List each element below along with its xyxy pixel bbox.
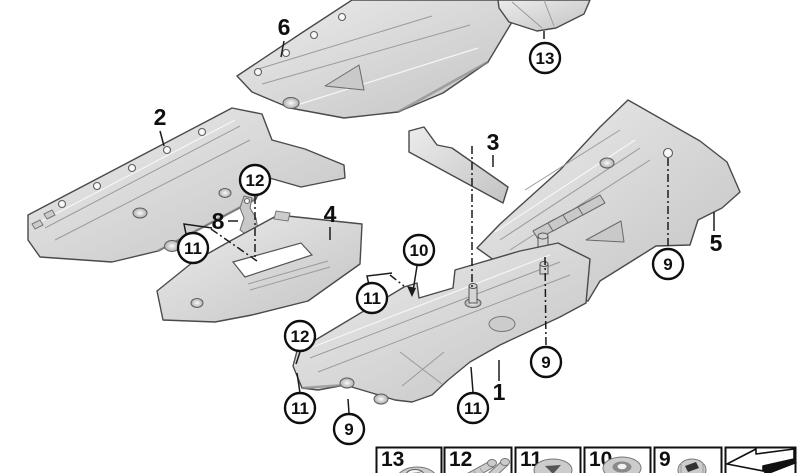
svg-text:13: 13 [536, 49, 555, 68]
callout-9-bottom[interactable]: 9 [334, 414, 364, 444]
part-label-4[interactable]: 4 [324, 201, 337, 227]
legend-cell-10[interactable]: 10 [585, 448, 651, 473]
svg-text:11: 11 [363, 289, 381, 308]
svg-text:12: 12 [449, 448, 472, 471]
part-label-1[interactable]: 1 [493, 379, 506, 405]
callout-11-mid[interactable]: 11 [357, 283, 387, 313]
callout-12-lower[interactable]: 12 [285, 321, 315, 351]
svg-text:9: 9 [659, 448, 671, 471]
part-label-3[interactable]: 3 [487, 129, 500, 155]
legend-cell-11[interactable]: 11 [516, 448, 581, 473]
callout-12-upper[interactable]: 12 [240, 165, 270, 195]
svg-text:12: 12 [291, 327, 310, 346]
part-label-6[interactable]: 6 [278, 14, 291, 40]
legend-cell-13[interactable]: 13 [377, 448, 442, 473]
callout-11-bottom-right[interactable]: 11 [458, 393, 488, 423]
svg-text:11: 11 [184, 239, 202, 258]
svg-text:12: 12 [246, 171, 265, 190]
callout-10[interactable]: 10 [404, 235, 434, 265]
part-label-2[interactable]: 2 [154, 104, 167, 130]
panel-13-bracket [498, 0, 590, 31]
svg-text:11: 11 [464, 399, 482, 418]
svg-text:9: 9 [663, 255, 672, 274]
svg-text:13: 13 [381, 448, 404, 471]
callout-9-right[interactable]: 9 [653, 249, 683, 279]
diagram: 6 2 3 8 4 5 1 13 12 11 10 11 9 12 9 11 1… [0, 0, 800, 473]
callout-9-center[interactable]: 9 [531, 347, 561, 377]
part-label-8[interactable]: 8 [212, 208, 225, 234]
callout-13[interactable]: 13 [530, 43, 560, 73]
callout-11-bottom-left[interactable]: 11 [285, 393, 315, 423]
stud-panel-1-short [540, 262, 548, 275]
svg-text:10: 10 [410, 241, 429, 260]
callout-11-left[interactable]: 11 [178, 233, 208, 263]
svg-text:9: 9 [541, 353, 550, 372]
part-label-5[interactable]: 5 [710, 230, 723, 256]
legend-cell-12[interactable]: 12 [445, 448, 512, 473]
svg-text:9: 9 [344, 420, 353, 439]
svg-text:11: 11 [291, 399, 309, 418]
parts-diagram-canvas: 6 2 3 8 4 5 1 13 12 11 10 11 9 12 9 11 1… [0, 0, 800, 473]
legend-cell-continuation[interactable] [726, 448, 798, 473]
legend-cell-9[interactable]: 9 [655, 448, 722, 473]
legend-strip: 13 12 11 [377, 448, 798, 473]
